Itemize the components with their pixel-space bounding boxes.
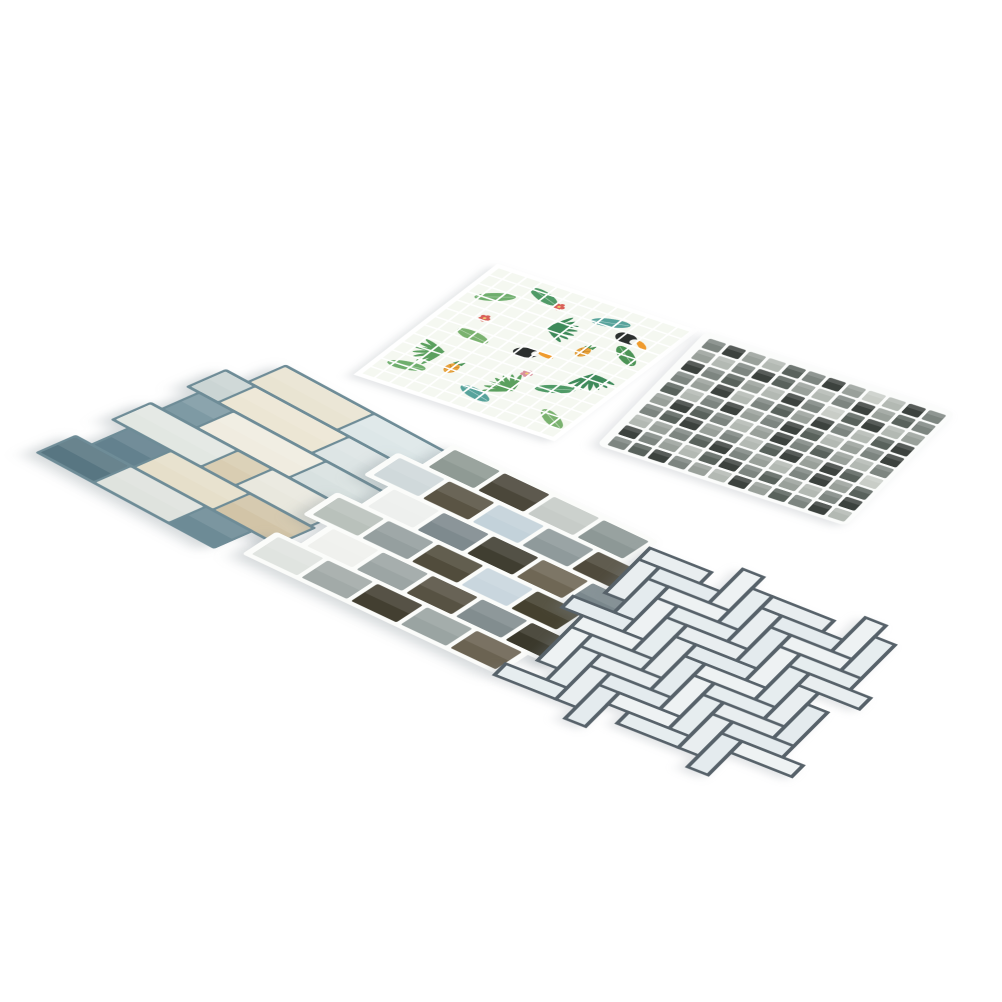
product-photo-canvas: [0, 0, 1002, 1002]
